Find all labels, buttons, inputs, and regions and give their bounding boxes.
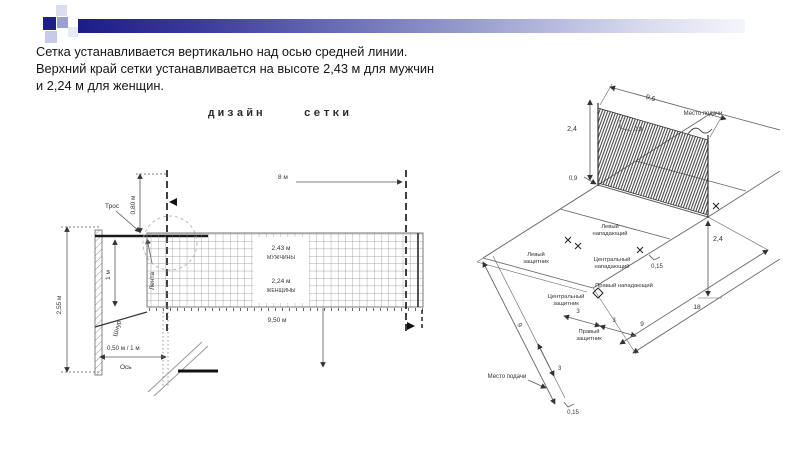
dim-3c: 3 — [558, 366, 562, 372]
deco-square — [68, 27, 78, 37]
dim-net-height: 1 м — [105, 270, 112, 280]
dim-antenna-span: 8 м — [278, 174, 288, 181]
dim-net-height-left: 2,4 — [567, 126, 577, 133]
deco-square — [45, 31, 57, 43]
player-center-attacker: нападающий — [595, 263, 630, 270]
player-center-defender: Центральный — [548, 293, 585, 300]
men-height-label: 2,43 м — [272, 245, 291, 252]
presentation-slide: Сетка устанавливается вертикально над ос… — [0, 0, 800, 450]
cable-label: Трос — [105, 203, 120, 210]
player-left-attacker: нападающий — [593, 230, 628, 237]
net-post — [95, 230, 102, 375]
dim-3a: 3 — [576, 309, 580, 315]
dim-band-top: 0,9 — [634, 127, 643, 133]
deco-square — [56, 5, 67, 16]
dim-line-width-bottom: 0,15 — [567, 410, 579, 416]
deco-square — [43, 17, 56, 30]
deco-gradient-bar — [78, 19, 745, 33]
player-left-defender: Левый — [527, 251, 545, 258]
net-design-title: дизайн сетки — [150, 108, 410, 120]
player-left-attacker: Левый — [601, 223, 619, 230]
court-perspective-diagram: 2,4 2,4 9,6 0,9 0,9 Место подачи 0,15 0,… — [460, 58, 780, 430]
dim-net-length: 9,6 — [645, 94, 656, 103]
dim-net-length: 9,50 м — [268, 317, 287, 324]
dim-line-width: 0,15 — [651, 264, 663, 270]
women-label: ЖЕНЩИНЫ — [267, 288, 296, 294]
men-label: МУЖЧИНЫ — [267, 255, 295, 261]
deco-square — [57, 17, 68, 28]
dim-net-height-right: 2,4 — [713, 236, 723, 243]
axis-label: Ось — [120, 364, 132, 371]
dim-post-height: 2,55 м — [56, 295, 63, 314]
band-label: Лента — [149, 272, 156, 290]
serve-place-bottom: Место подачи — [488, 374, 527, 380]
player-center-attacker: Центральный — [594, 256, 631, 263]
player-left-defender: защитник — [523, 259, 549, 265]
dim-18: 18 — [693, 304, 701, 311]
court-net — [598, 108, 708, 215]
court-lines — [477, 84, 780, 407]
player-center-defender: защитник — [553, 301, 579, 307]
player-right-defender: защитник — [576, 336, 602, 342]
net-design-diagram: 2,55 м 0,80 м 1 м Трос Лента Шнур 8 м 9,… — [50, 145, 450, 425]
women-height-label: 2,24 м — [272, 278, 291, 285]
player-right-attacker: Правый нападающий — [595, 282, 653, 289]
dim-band-bottom: 0,9 — [569, 176, 578, 182]
player-right-defender: Правый — [578, 328, 599, 335]
serve-place-top: Место подачи — [684, 111, 723, 117]
dim-9: 9 — [640, 321, 644, 328]
dim-antenna-above: 0,80 м — [130, 195, 137, 214]
dim-post-offset: 0,50 м / 1 м — [107, 345, 140, 352]
